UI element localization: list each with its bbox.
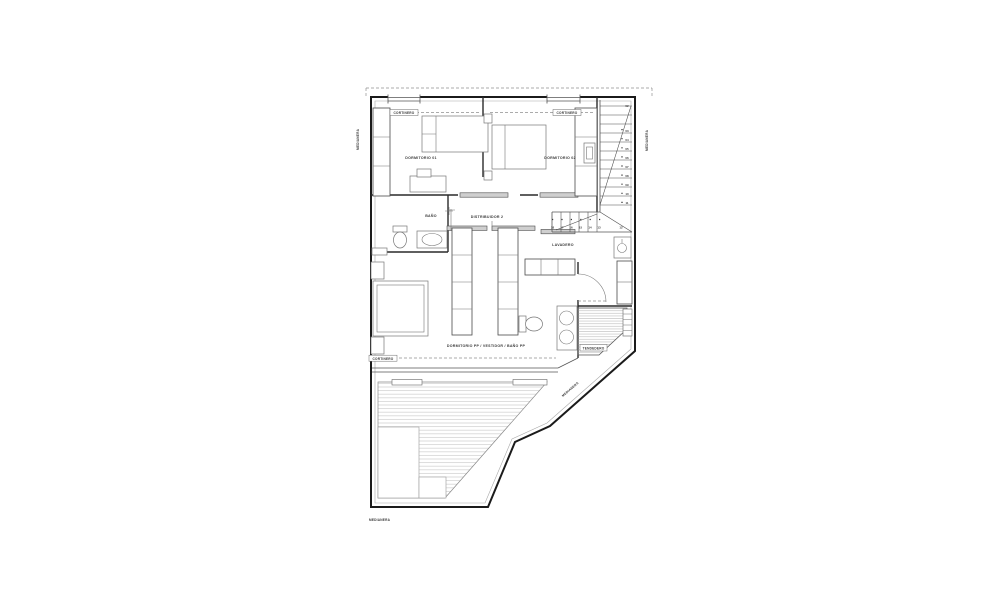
medianera-label-right: MEDIANERA	[645, 129, 649, 151]
deck-vent-1	[392, 380, 422, 386]
stair-step-number: 06	[625, 156, 629, 160]
stair-step-number: 17	[560, 226, 564, 230]
stair-step-number: 12	[619, 226, 623, 230]
floor-plan-canvas: 02 03 04 05 06 07 08 09 10 11 18 17 16 1…	[0, 0, 1000, 600]
top-wall-window-1	[388, 95, 420, 104]
bed	[422, 116, 488, 152]
medianera-label-left: MEDIANERA	[356, 128, 360, 150]
room-dormitorio-02: DORMITORIO 02	[484, 108, 597, 196]
sink	[417, 231, 447, 248]
stair-step-number: 03	[625, 129, 629, 133]
sliding-door-dorm1	[460, 193, 508, 197]
double-sink	[557, 306, 577, 350]
window-gap	[388, 95, 420, 104]
stair-step-number: 13	[597, 226, 601, 230]
room-label-tendedero: TENDEDERO	[583, 347, 605, 351]
stair-numbers-upper: 02 03 04 05 06 07 08 09 10 11	[625, 104, 629, 205]
deck-vent-2	[513, 380, 547, 386]
deck-lower-area-2	[419, 477, 446, 498]
stair-step-number: 16	[569, 226, 573, 230]
stair-step-number: 14	[588, 226, 592, 230]
room-label-dormitorio-pp: DORMITORIO PP / VESTIDOR / BAÑO PP	[447, 343, 526, 348]
stair-step-number: 15	[579, 226, 583, 230]
room-distribuidor: DISTRIBUIDOR 2	[471, 215, 503, 219]
stair-step-number: 04	[625, 138, 629, 142]
stair-step-number: 02	[625, 104, 629, 108]
stair-step-number: 18	[551, 226, 555, 230]
cortinero-label-3: CORTINERO	[373, 357, 394, 361]
vestidor-closets	[452, 228, 518, 335]
bed	[371, 262, 428, 354]
desk	[410, 169, 446, 192]
stair-step-number: 08	[625, 174, 629, 178]
room-label-bano: BAÑO	[425, 213, 437, 218]
deck-lower-area-1	[378, 427, 419, 498]
room-bano: BAÑO	[372, 213, 447, 255]
wardrobe	[373, 108, 390, 196]
wardrobe	[575, 108, 597, 196]
shelf	[372, 248, 387, 255]
cortinero-label-2: CORTINERO	[557, 111, 578, 115]
medianera-label-bottom: MEDIANERA	[369, 518, 391, 522]
sliding-door-dorm2	[540, 193, 578, 197]
bed	[484, 114, 546, 180]
drying-rack	[623, 309, 632, 336]
window-gap	[547, 95, 580, 104]
stair-step-number: 09	[625, 183, 629, 187]
stair-step-number: 07	[625, 165, 629, 169]
room-label-dormitorio-01: DORMITORIO 01	[405, 156, 437, 160]
room-label-lavadero: LAVADERO	[552, 243, 574, 247]
stair-step-number: 05	[625, 147, 629, 151]
cortinero-label-1: CORTINERO	[394, 111, 415, 115]
stair-numbers-lower: 18 17 16 15 14 13 12	[551, 226, 623, 230]
room-dormitorio-pp: DORMITORIO PP / VESTIDOR / BAÑO PP	[371, 262, 577, 354]
room-label-distribuidor: DISTRIBUIDOR 2	[471, 215, 503, 219]
toilet	[393, 226, 407, 248]
room-dormitorio-01: DORMITORIO 01	[373, 108, 488, 196]
room-tendedero: TENDEDERO	[578, 308, 632, 355]
laundry-sink	[614, 237, 631, 258]
terrace-window-wall	[372, 358, 578, 372]
stair-step-number: 11	[625, 201, 628, 205]
medianera-label-diagonal: MEDIANERA	[561, 381, 580, 398]
closet-column-1	[452, 228, 472, 335]
room-label-dormitorio-02: DORMITORIO 02	[544, 156, 576, 160]
toilet-pp	[519, 316, 543, 332]
closet-column-2	[498, 228, 518, 335]
top-wall-window-2	[547, 95, 580, 104]
door-swing	[578, 274, 606, 302]
stair-step-number: 10	[625, 192, 629, 196]
